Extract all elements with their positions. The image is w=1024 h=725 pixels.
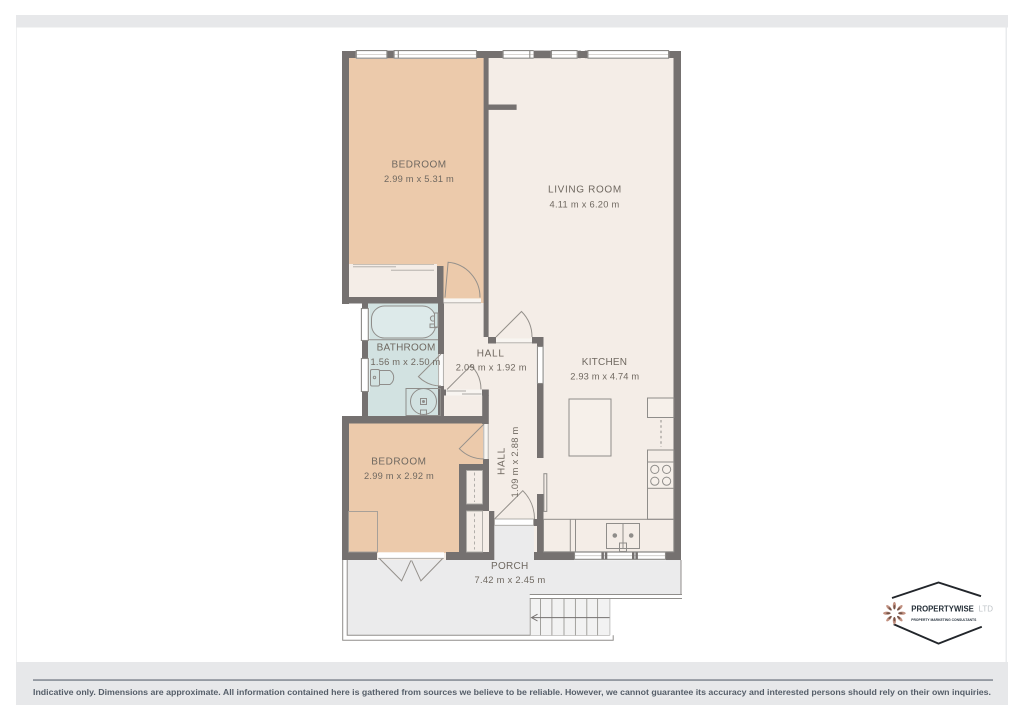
svg-text:LTD: LTD bbox=[979, 604, 994, 613]
svg-text:1.09 m x 2.88 m: 1.09 m x 2.88 m bbox=[510, 426, 520, 497]
svg-text:2.99 m x 5.31 m: 2.99 m x 5.31 m bbox=[384, 174, 454, 184]
svg-text:KITCHEN: KITCHEN bbox=[582, 357, 628, 368]
svg-text:HALL: HALL bbox=[497, 447, 508, 475]
svg-text:2.99 m x 2.92 m: 2.99 m x 2.92 m bbox=[364, 471, 434, 481]
svg-text:BEDROOM: BEDROOM bbox=[391, 160, 447, 171]
svg-text:7.42 m x 2.45 m: 7.42 m x 2.45 m bbox=[475, 575, 546, 585]
svg-text:BATHROOM: BATHROOM bbox=[377, 343, 437, 354]
svg-text:PROPERTYWISE: PROPERTYWISE bbox=[911, 604, 974, 613]
svg-text:PORCH: PORCH bbox=[491, 561, 529, 572]
svg-text:HALL: HALL bbox=[477, 348, 505, 359]
svg-text:1.56 m x 2.50 m: 1.56 m x 2.50 m bbox=[371, 357, 441, 367]
svg-text:BEDROOM: BEDROOM bbox=[371, 457, 427, 468]
svg-text:Indicative only. Dimensions ar: Indicative only. Dimensions are approxim… bbox=[33, 687, 991, 697]
svg-text:LIVING ROOM: LIVING ROOM bbox=[548, 185, 622, 196]
svg-text:4.11 m x 6.20 m: 4.11 m x 6.20 m bbox=[550, 199, 620, 209]
svg-text:2.93 m x 4.74 m: 2.93 m x 4.74 m bbox=[570, 371, 639, 381]
svg-text:PROPERTY MARKETING CONSULTANTS: PROPERTY MARKETING CONSULTANTS bbox=[911, 618, 976, 622]
svg-text:2.09 m x 1.92 m: 2.09 m x 1.92 m bbox=[456, 362, 527, 372]
